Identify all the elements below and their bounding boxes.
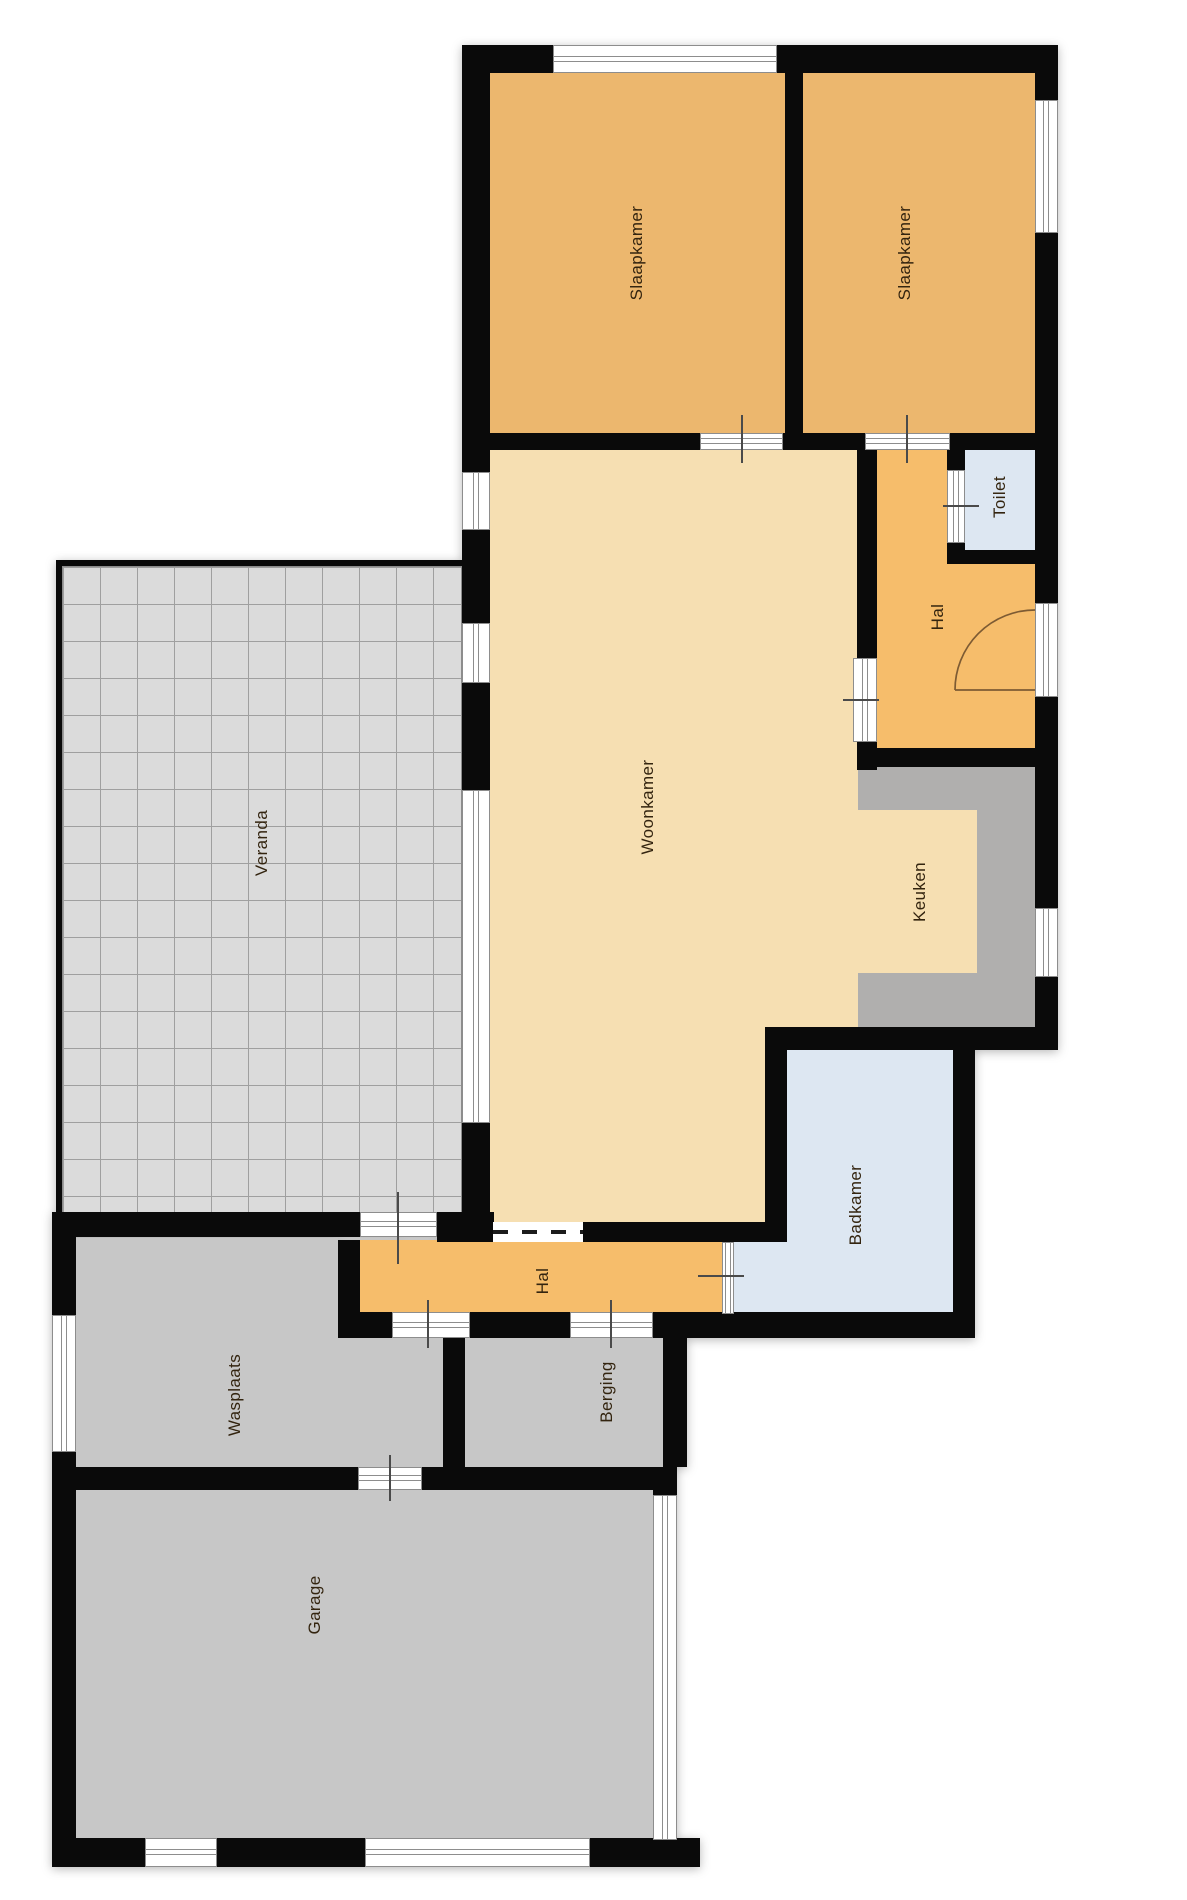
room-label-toilet: Toilet bbox=[990, 476, 1010, 518]
room-wasplaats bbox=[76, 1338, 443, 1468]
wall bbox=[1035, 697, 1058, 908]
wall bbox=[462, 683, 490, 790]
room-keuken-aanrecht bbox=[977, 805, 1035, 975]
room-garage bbox=[76, 1490, 653, 1840]
wall bbox=[653, 1467, 677, 1497]
front-door bbox=[1035, 603, 1058, 697]
door-tick bbox=[943, 505, 979, 507]
room-label-hal-beneden: Hal bbox=[533, 1268, 553, 1295]
room-label-berging: Berging bbox=[597, 1361, 617, 1422]
door-tick bbox=[610, 1300, 612, 1348]
wall bbox=[56, 560, 62, 1216]
door-tick bbox=[397, 1192, 399, 1264]
wall bbox=[785, 70, 803, 438]
wall bbox=[765, 1027, 787, 1242]
wall bbox=[857, 748, 1035, 767]
room-label-woonkamer: Woonkamer bbox=[638, 760, 658, 855]
wall bbox=[1035, 45, 1058, 100]
window-garage-right bbox=[653, 1495, 677, 1840]
wall bbox=[462, 433, 700, 450]
wall bbox=[217, 1838, 365, 1867]
window-keuken bbox=[1035, 908, 1058, 977]
wall bbox=[422, 1467, 677, 1490]
window-woonkamer-2 bbox=[462, 623, 490, 683]
room-label-hal-boven: Hal bbox=[928, 604, 948, 631]
wall bbox=[338, 1312, 392, 1338]
wall bbox=[52, 1212, 76, 1318]
wall bbox=[56, 560, 462, 566]
room-label-garage: Garage bbox=[305, 1575, 325, 1634]
room-badkamer bbox=[727, 1240, 953, 1314]
door-tick bbox=[698, 1275, 744, 1277]
wall bbox=[437, 1212, 494, 1242]
door-tick bbox=[906, 415, 908, 463]
door-tick bbox=[427, 1300, 429, 1348]
door-hal-badkamer bbox=[722, 1242, 734, 1314]
window-slaapkamer-right bbox=[1035, 100, 1058, 233]
wall bbox=[765, 1027, 1058, 1050]
floorplan-canvas: WoonkamerKeukenBadkamerHalToiletSlaapkam… bbox=[0, 0, 1187, 1900]
wall bbox=[953, 1027, 975, 1337]
room-label-slaapkamer-1: Slaapkamer bbox=[627, 206, 647, 301]
room-label-badkamer: Badkamer bbox=[846, 1165, 866, 1246]
wall bbox=[443, 1338, 465, 1468]
room-keuken-aanrecht bbox=[858, 973, 1035, 1028]
window-woonkamer-1 bbox=[462, 472, 490, 530]
wall bbox=[462, 45, 490, 472]
wall bbox=[462, 530, 490, 623]
door-tick bbox=[741, 415, 743, 463]
wall bbox=[583, 1222, 787, 1242]
room-label-veranda: Veranda bbox=[252, 810, 272, 876]
door-tick bbox=[389, 1455, 391, 1501]
room-label-slaapkamer-2: Slaapkamer bbox=[895, 206, 915, 301]
wall bbox=[783, 433, 865, 450]
wall bbox=[950, 433, 1058, 450]
wall bbox=[590, 1838, 700, 1867]
wall bbox=[52, 1450, 76, 1867]
wall bbox=[52, 1467, 358, 1490]
wall bbox=[947, 550, 1035, 564]
room-keuken-aanrecht bbox=[858, 765, 1035, 810]
window-garage-2 bbox=[365, 1838, 590, 1867]
wall bbox=[470, 1312, 570, 1338]
window-slaapkamer-top bbox=[553, 45, 777, 73]
wall bbox=[653, 1312, 975, 1338]
floor-plan: WoonkamerKeukenBadkamerHalToiletSlaapkam… bbox=[0, 0, 1187, 1900]
window-wasplaats bbox=[52, 1315, 76, 1452]
window-woonkamer-slider bbox=[462, 790, 490, 1123]
wall bbox=[857, 437, 877, 660]
room-berging bbox=[465, 1338, 663, 1468]
room-slaapkamer-2 bbox=[800, 70, 1045, 438]
wall bbox=[663, 1312, 687, 1467]
sliding-door-woonkamer-hal bbox=[493, 1222, 583, 1242]
door-hal-wasplaats bbox=[392, 1312, 470, 1338]
room-veranda bbox=[62, 566, 462, 1215]
door-tick bbox=[843, 699, 879, 701]
room-label-wasplaats: Wasplaats bbox=[225, 1354, 245, 1436]
room-badkamer bbox=[787, 1048, 953, 1242]
room-label-keuken: Keuken bbox=[910, 862, 930, 922]
wall bbox=[1035, 233, 1058, 603]
window-garage-1 bbox=[145, 1838, 217, 1867]
wall bbox=[52, 1838, 145, 1867]
room-wasplaats bbox=[76, 1238, 338, 1340]
wall bbox=[947, 448, 965, 472]
wall bbox=[52, 1212, 360, 1237]
